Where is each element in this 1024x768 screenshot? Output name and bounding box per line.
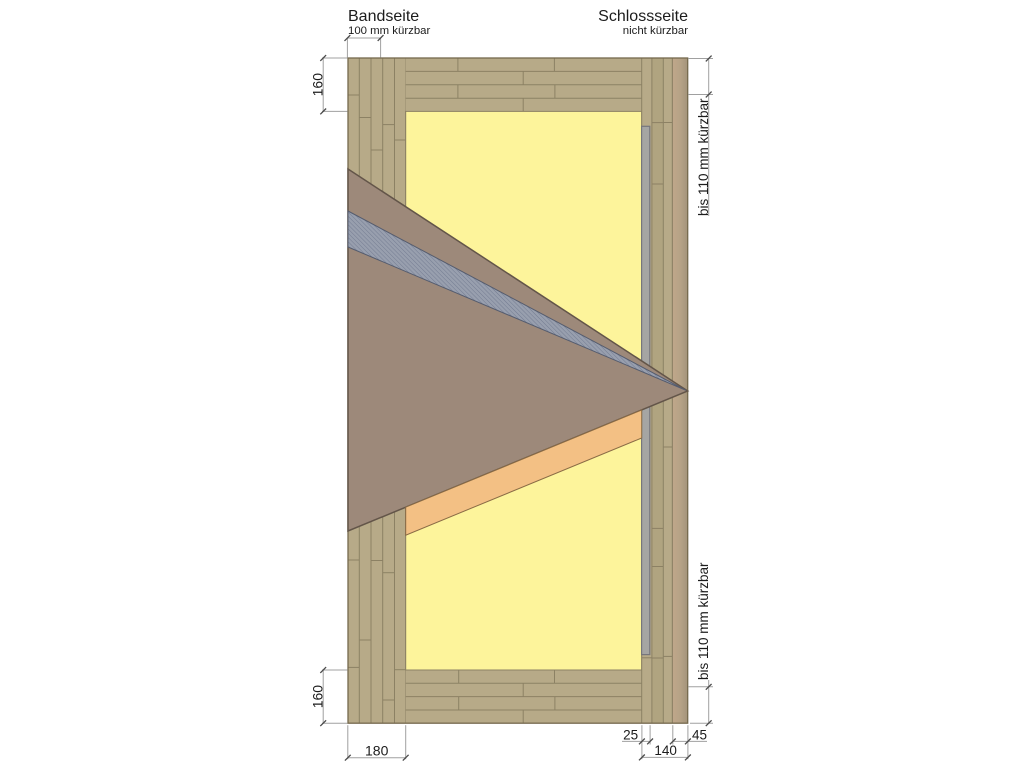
svg-text:bis 110 mm kürzbar: bis 110 mm kürzbar (696, 98, 711, 216)
svg-text:140: 140 (654, 743, 677, 758)
svg-text:45: 45 (692, 727, 707, 742)
svg-text:100 mm kürzbar: 100 mm kürzbar (348, 25, 430, 37)
svg-text:nicht kürzbar: nicht kürzbar (623, 25, 688, 37)
svg-text:Schlossseite: Schlossseite (598, 8, 688, 25)
svg-text:25: 25 (623, 727, 638, 742)
svg-text:Bandseite: Bandseite (348, 8, 419, 25)
svg-text:180: 180 (365, 742, 389, 758)
svg-text:160: 160 (309, 73, 325, 97)
svg-text:bis 110 mm kürzbar: bis 110 mm kürzbar (696, 562, 711, 680)
svg-text:160: 160 (309, 685, 325, 709)
